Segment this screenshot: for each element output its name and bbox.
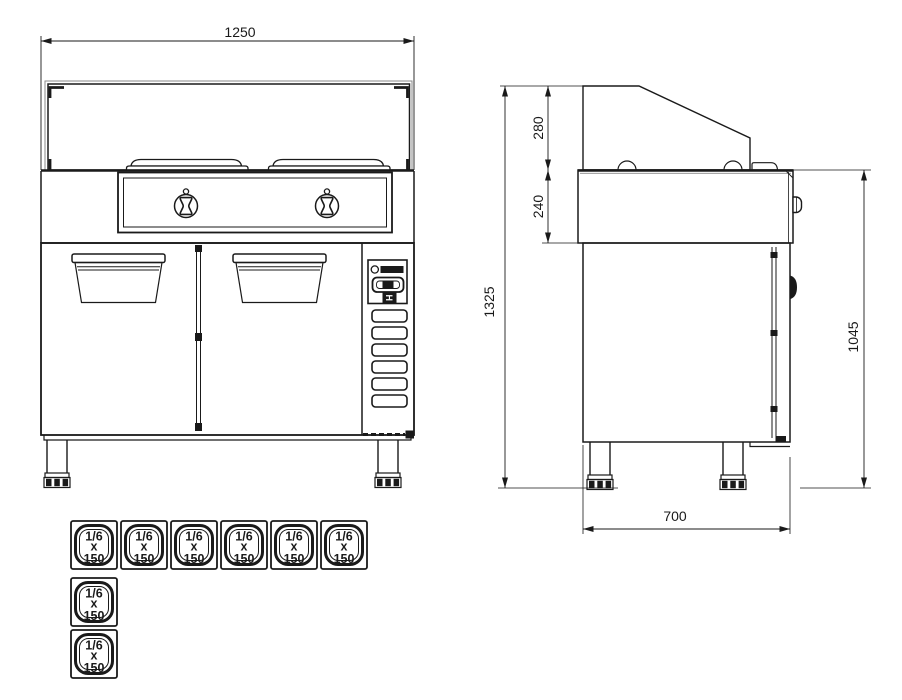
lid-left-front bbox=[127, 160, 249, 171]
lid-bump-right bbox=[724, 161, 742, 170]
glass-guard-side bbox=[583, 86, 778, 170]
cabinet-front bbox=[41, 243, 414, 440]
hinge-middle bbox=[771, 330, 778, 336]
switch-toggle-icon bbox=[383, 282, 394, 289]
thermostat-dial-icon bbox=[371, 266, 378, 273]
vent-slot bbox=[372, 361, 407, 373]
glass-guard-front bbox=[45, 81, 412, 170]
body-height-dimension: 1045 bbox=[845, 170, 864, 488]
worktop-fascia bbox=[118, 173, 392, 233]
side-knob-icon bbox=[793, 197, 802, 213]
lid-bump-left bbox=[618, 161, 636, 170]
indicator-light-icon bbox=[324, 189, 329, 194]
gn-pan-icon bbox=[71, 578, 117, 626]
fascia-outer bbox=[118, 173, 392, 233]
front-view: 1250 bbox=[41, 24, 414, 488]
dimension-depth-label: 700 bbox=[663, 508, 687, 524]
vent-slot bbox=[372, 344, 407, 356]
door-handle-right bbox=[233, 254, 326, 303]
display-icon bbox=[381, 266, 404, 273]
front-width-dimension: 1250 bbox=[41, 24, 414, 170]
fascia-inner bbox=[124, 178, 387, 227]
door-foot bbox=[776, 436, 787, 442]
glass-outer bbox=[45, 81, 412, 170]
glass-profile bbox=[583, 86, 750, 170]
hinge-bottom bbox=[771, 406, 778, 412]
gn-pan-icon bbox=[121, 521, 167, 569]
technical-drawing: 1/6 x 150 1250 bbox=[0, 0, 902, 700]
vent-slot bbox=[372, 395, 407, 407]
lid-right-front bbox=[269, 160, 391, 171]
door-handle-left bbox=[72, 254, 165, 303]
dimension-worktop-height-label: 240 bbox=[530, 195, 546, 219]
ventilation-slots bbox=[372, 310, 407, 407]
total-height-dimension: 1325 bbox=[481, 86, 505, 488]
worktop-height-dimension: 240 bbox=[530, 170, 548, 243]
glass-bracket-left bbox=[50, 88, 64, 99]
depth-dimension: 700 bbox=[583, 508, 790, 529]
worktop-side bbox=[578, 170, 802, 243]
control-box: H bbox=[368, 260, 407, 304]
gn-pan-layout bbox=[71, 521, 367, 678]
dimension-body-height-label: 1045 bbox=[845, 321, 861, 352]
cabinet-side bbox=[583, 243, 797, 447]
door-handle-side bbox=[790, 276, 797, 300]
side-leg-rear bbox=[720, 442, 746, 490]
cabinet-body bbox=[41, 243, 414, 435]
control-knob-right bbox=[316, 189, 339, 218]
gn-pan-icon bbox=[71, 630, 117, 678]
control-column: H bbox=[362, 243, 414, 439]
side-view: 1325 280 240 1045 700 bbox=[481, 86, 871, 534]
indicator-light-icon bbox=[183, 189, 188, 194]
gn-pan-icon bbox=[271, 521, 317, 569]
switch-label: H bbox=[384, 295, 394, 302]
knob-grip-icon bbox=[321, 198, 333, 215]
vent-slot bbox=[372, 327, 407, 339]
side-dimensions: 1325 280 240 1045 700 bbox=[481, 86, 871, 534]
vent-slot bbox=[372, 378, 407, 390]
vent-slot bbox=[372, 310, 407, 322]
front-leg-left bbox=[44, 440, 70, 488]
dimension-total-height-label: 1325 bbox=[481, 286, 497, 317]
hinge-top bbox=[771, 252, 778, 258]
dimension-width-label: 1250 bbox=[224, 24, 255, 40]
drain-valve-icon bbox=[406, 431, 415, 439]
front-leg-right bbox=[375, 440, 401, 488]
cabinet-body-side bbox=[583, 243, 790, 442]
gn-pan-icon bbox=[321, 521, 367, 569]
side-leg-front bbox=[587, 442, 613, 490]
guard-height-dimension: 280 bbox=[530, 86, 548, 170]
lid-side-right bbox=[752, 163, 778, 170]
gn-pan-icon bbox=[171, 521, 217, 569]
control-knob-left bbox=[175, 189, 198, 218]
gn-pan-icon bbox=[71, 521, 117, 569]
gn-pan-icon bbox=[221, 521, 267, 569]
glass-frame bbox=[48, 84, 410, 170]
drawing-sheet: 1/6 x 150 1250 bbox=[0, 0, 902, 700]
glass-bracket-right bbox=[394, 88, 408, 99]
knob-grip-icon bbox=[180, 198, 192, 215]
dimension-guard-height-label: 280 bbox=[530, 116, 546, 140]
